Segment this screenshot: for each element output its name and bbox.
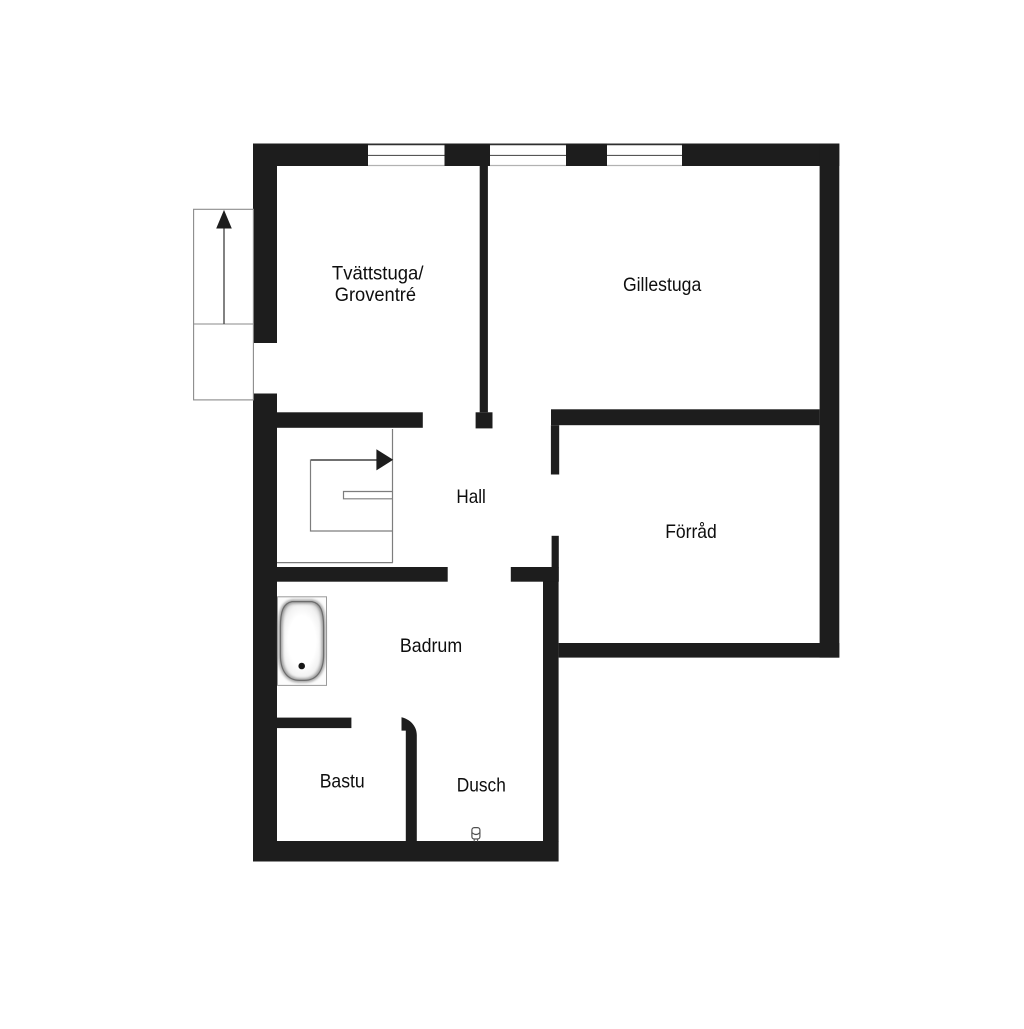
svg-text:Hall: Hall [456, 486, 485, 508]
svg-text:Dusch: Dusch [457, 775, 506, 797]
svg-text:Gillestuga: Gillestuga [623, 274, 701, 296]
svg-text:Groventré: Groventré [335, 284, 416, 306]
svg-text:Förråd: Förråd [665, 521, 717, 543]
svg-text:Tvättstuga/: Tvättstuga/ [332, 262, 424, 284]
svg-text:Bastu: Bastu [320, 771, 365, 793]
svg-text:Badrum: Badrum [400, 635, 462, 657]
